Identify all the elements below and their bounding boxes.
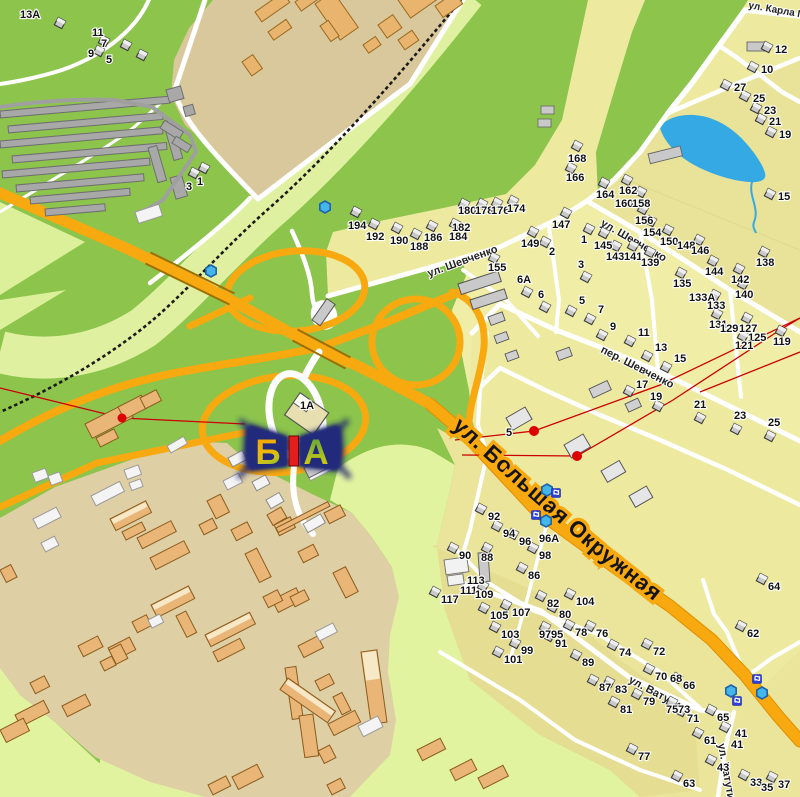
svg-text:119: 119 (773, 336, 791, 348)
svg-text:150: 150 (660, 236, 678, 248)
svg-text:43: 43 (717, 762, 729, 774)
svg-text:13А: 13А (20, 9, 40, 21)
svg-text:99: 99 (521, 645, 533, 657)
svg-text:155: 155 (488, 262, 506, 274)
svg-text:87: 87 (599, 682, 611, 694)
svg-text:10: 10 (761, 64, 773, 76)
svg-text:21: 21 (694, 399, 706, 411)
svg-text:117: 117 (441, 594, 459, 606)
svg-text:70: 70 (655, 671, 667, 683)
svg-text:15: 15 (674, 353, 686, 365)
svg-text:166: 166 (566, 172, 584, 184)
svg-text:76: 76 (596, 628, 608, 640)
svg-text:71: 71 (687, 713, 699, 725)
svg-text:96: 96 (519, 536, 531, 548)
svg-text:97: 97 (539, 629, 551, 641)
svg-text:164: 164 (596, 189, 615, 201)
svg-text:37: 37 (778, 779, 790, 791)
svg-text:3: 3 (186, 181, 192, 193)
svg-text:182: 182 (452, 222, 470, 234)
svg-text:139: 139 (641, 257, 659, 269)
svg-text:А: А (303, 433, 328, 472)
svg-text:1А: 1А (300, 400, 314, 412)
svg-text:101: 101 (504, 654, 522, 666)
svg-text:7: 7 (101, 38, 107, 50)
svg-text:66: 66 (683, 680, 695, 692)
svg-text:186: 186 (424, 232, 442, 244)
svg-text:105: 105 (490, 610, 508, 622)
svg-text:79: 79 (643, 696, 655, 708)
svg-text:3: 3 (578, 259, 584, 271)
svg-text:25: 25 (768, 417, 780, 429)
svg-text:174: 174 (507, 203, 526, 215)
svg-text:25: 25 (753, 93, 765, 105)
svg-text:147: 147 (552, 219, 570, 231)
svg-text:64: 64 (768, 581, 781, 593)
svg-text:98: 98 (539, 550, 551, 562)
svg-text:91: 91 (555, 638, 567, 650)
svg-text:103: 103 (501, 629, 519, 641)
svg-text:7: 7 (598, 304, 604, 316)
svg-text:27: 27 (734, 82, 746, 94)
svg-text:81: 81 (620, 704, 632, 716)
svg-text:1: 1 (581, 234, 587, 246)
svg-text:138: 138 (756, 257, 774, 269)
svg-text:156: 156 (635, 215, 653, 227)
svg-text:75: 75 (666, 704, 678, 716)
svg-text:109: 109 (475, 589, 493, 601)
svg-text:5: 5 (106, 54, 112, 66)
svg-text:1: 1 (197, 176, 203, 188)
svg-text:135: 135 (673, 278, 691, 290)
svg-text:17: 17 (636, 379, 648, 391)
svg-text:21: 21 (769, 116, 781, 128)
svg-text:5: 5 (579, 295, 585, 307)
svg-text:160: 160 (615, 198, 633, 210)
svg-text:104: 104 (576, 596, 595, 608)
svg-text:23: 23 (734, 410, 746, 422)
svg-text:149: 149 (521, 238, 539, 250)
svg-text:133: 133 (707, 300, 725, 312)
svg-text:9: 9 (88, 48, 94, 60)
svg-text:141: 141 (624, 251, 642, 263)
svg-text:86: 86 (528, 570, 540, 582)
svg-text:78: 78 (575, 627, 587, 639)
svg-text:68: 68 (670, 673, 682, 685)
svg-text:89: 89 (582, 657, 594, 669)
svg-text:12: 12 (775, 44, 787, 56)
svg-text:140: 140 (735, 289, 753, 301)
svg-text:2: 2 (549, 246, 555, 258)
svg-text:121: 121 (735, 340, 753, 352)
svg-text:83: 83 (615, 684, 627, 696)
svg-text:19: 19 (779, 129, 791, 141)
svg-text:15: 15 (778, 191, 790, 203)
svg-text:162: 162 (619, 185, 637, 197)
svg-text:180: 180 (458, 205, 476, 217)
svg-text:92: 92 (488, 511, 500, 523)
svg-text:146: 146 (691, 245, 709, 257)
svg-text:194: 194 (348, 220, 367, 232)
svg-text:6А: 6А (517, 274, 531, 286)
svg-text:19: 19 (650, 391, 662, 403)
svg-text:96А: 96А (539, 533, 559, 545)
svg-text:82: 82 (547, 598, 559, 610)
svg-text:61: 61 (704, 735, 716, 747)
svg-text:65: 65 (717, 712, 729, 724)
svg-text:13: 13 (655, 342, 667, 354)
svg-text:192: 192 (366, 231, 384, 243)
svg-text:9: 9 (610, 321, 616, 333)
svg-text:5: 5 (506, 427, 512, 439)
svg-text:Б: Б (255, 433, 280, 472)
svg-text:62: 62 (747, 628, 759, 640)
svg-text:88: 88 (481, 552, 493, 564)
svg-text:6: 6 (538, 289, 544, 301)
svg-text:190: 190 (390, 235, 408, 247)
svg-text:63: 63 (683, 778, 695, 790)
svg-text:144: 144 (705, 266, 724, 278)
svg-text:107: 107 (512, 607, 530, 619)
svg-text:74: 74 (619, 647, 632, 659)
svg-text:90: 90 (459, 550, 471, 562)
svg-text:129: 129 (720, 323, 738, 335)
svg-text:158: 158 (632, 198, 650, 210)
svg-text:72: 72 (653, 646, 665, 658)
svg-text:11: 11 (638, 327, 650, 339)
svg-text:94: 94 (503, 528, 516, 540)
svg-text:142: 142 (731, 274, 749, 286)
svg-text:143: 143 (606, 251, 624, 263)
svg-text:80: 80 (559, 609, 571, 621)
svg-text:35: 35 (761, 782, 773, 794)
svg-text:77: 77 (638, 751, 650, 763)
svg-text:41: 41 (731, 739, 743, 751)
svg-text:168: 168 (568, 153, 586, 165)
